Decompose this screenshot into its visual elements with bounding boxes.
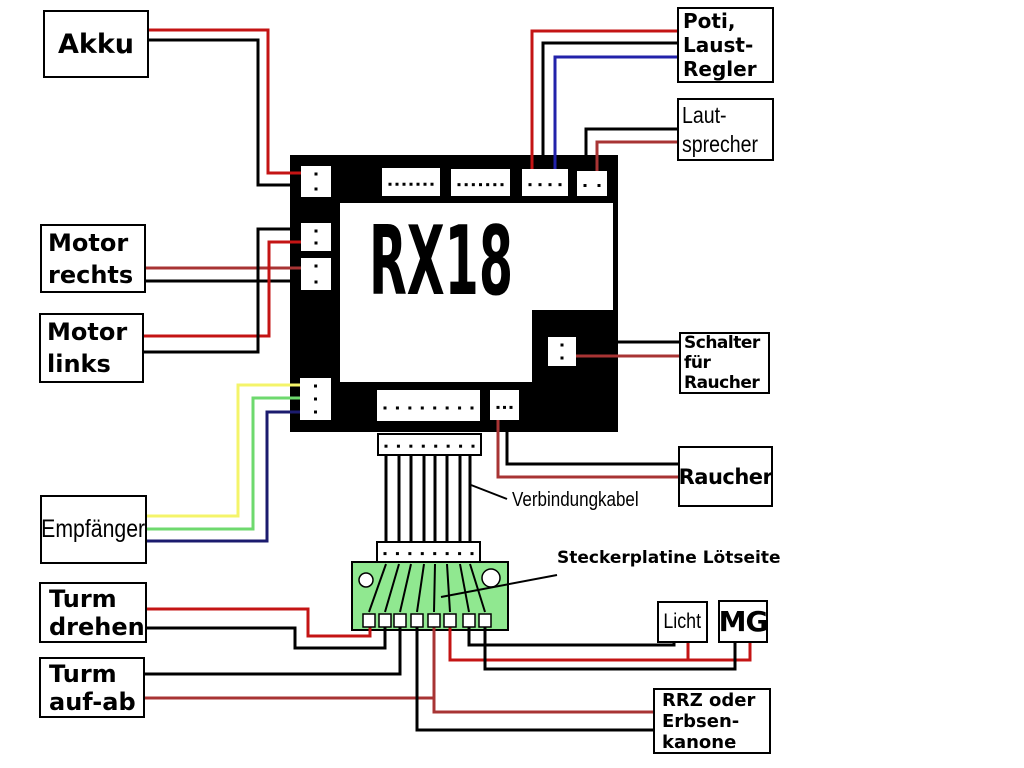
ribbon-cable: [377, 434, 481, 562]
pin-dot: [501, 183, 504, 186]
pin-dot: [472, 445, 475, 448]
mounting-hole: [482, 569, 500, 587]
rx18-board-corner: [532, 310, 618, 432]
lautsprecher-label-line: sprecher: [682, 130, 758, 159]
schalter-raucher-box: Schalter für Raucher: [679, 332, 770, 394]
pin-dot: [559, 183, 562, 186]
poti-laustregler-box: Poti, Laust- Regler: [677, 7, 774, 83]
wire-motor-links-black: [142, 229, 303, 352]
solder-pad: [363, 614, 375, 627]
solder-pad: [379, 614, 391, 627]
top-connector-2: [451, 169, 510, 196]
diagram-canvas: RX18: [0, 0, 1024, 768]
akku-connector: [301, 166, 331, 197]
wire-empfaenger-blue: [146, 412, 302, 541]
wire-turm-drehen-red: [146, 609, 370, 636]
pin-dot: [471, 406, 474, 409]
pin-dot: [434, 445, 437, 448]
motor-links-connector: [301, 258, 331, 290]
pin-dot: [315, 173, 318, 176]
pin-dot: [408, 406, 411, 409]
mg-box: MG: [718, 600, 768, 643]
pin-dot: [446, 406, 449, 409]
wire-poti-blue: [555, 57, 678, 170]
steckerplatine-label: Steckerplatine Lötseite: [557, 549, 781, 568]
raucher-box: Raucher: [678, 446, 773, 507]
pin-dot: [396, 406, 399, 409]
pin-dot: [479, 183, 482, 186]
pin-dot: [458, 183, 461, 186]
solder-pad: [411, 614, 423, 627]
pin-dot: [384, 406, 387, 409]
lautsprecher-connector: [577, 171, 607, 196]
licht-label: Licht: [664, 610, 702, 634]
empfaenger-label: Empfänger: [42, 515, 146, 544]
pin-dot: [459, 445, 462, 448]
licht-box: Licht: [657, 601, 708, 643]
pin-dot: [403, 183, 406, 186]
pin-dot: [486, 183, 489, 186]
wire-akku-black: [148, 40, 303, 185]
pin-dot: [396, 552, 399, 555]
rrz-erbsenkanone-box: RRZ oder Erbsen- kanone: [653, 688, 771, 754]
pin-dot: [314, 411, 317, 414]
pin-dot: [447, 445, 450, 448]
pin-dot: [315, 265, 318, 268]
rrz-label-line: RRZ oder: [662, 690, 755, 711]
verbindungskabel-text: Verbindungkabel: [512, 489, 639, 512]
loetseite-text: Lötseite: [703, 548, 781, 568]
rx18-wiring-diagram: RX18 Akku Poti, Laust- Regler Laut- spre…: [0, 0, 1024, 768]
motor-links-box: Motor links: [39, 313, 144, 383]
poti-label-line: Poti,: [683, 9, 735, 33]
pin-dot: [409, 445, 412, 448]
pin-dot: [465, 183, 468, 186]
lautsprecher-label-line: Laut-: [682, 101, 727, 130]
pin-dot: [422, 445, 425, 448]
poti-label-line: Regler: [683, 57, 757, 81]
pin-dot: [561, 357, 564, 360]
pin-dot: [458, 406, 461, 409]
schalter-label-line: Raucher: [684, 373, 759, 393]
wire-raucher-black: [507, 428, 678, 464]
schalter-label-line: Schalter: [684, 333, 760, 353]
steckerplatine-text: Steckerplatine: [557, 548, 697, 568]
pin-dot: [539, 183, 542, 186]
pin-dot: [397, 445, 400, 448]
rrz-label-line: Erbsen-: [662, 711, 739, 732]
motor-links-label-line: links: [47, 348, 111, 380]
pin-dot: [314, 398, 317, 401]
empfaenger-box: Empfänger: [40, 495, 147, 564]
pin-dot: [314, 385, 317, 388]
pcb-trace: [434, 564, 435, 612]
pin-dot: [421, 552, 424, 555]
solder-pad: [394, 614, 406, 627]
top-connector-1: [382, 168, 440, 196]
turm-drehen-box: Turm drehen: [39, 582, 147, 643]
mounting-hole: [359, 573, 373, 587]
turm-aufab-box: Turm auf-ab: [39, 657, 145, 718]
pin-dot: [497, 406, 500, 409]
pin-dot: [315, 188, 318, 191]
wire-empfaenger-green: [146, 398, 302, 529]
solder-pad: [479, 614, 491, 627]
pin-dot: [433, 406, 436, 409]
pin-dot: [424, 183, 427, 186]
ribbon-strip-top: [378, 434, 481, 455]
pin-dot: [503, 406, 506, 409]
pin-dot: [410, 183, 413, 186]
pin-dot: [529, 183, 532, 186]
verbindungskabel-label: Verbindungkabel: [512, 489, 661, 512]
solder-pad: [463, 614, 475, 627]
mg-label: MG: [719, 605, 768, 638]
poti-label-line: Laust-: [683, 33, 753, 57]
wire-akku-red: [148, 30, 303, 173]
cable-pointer-line: [471, 485, 507, 499]
pin-dot: [472, 183, 475, 186]
pin-dot: [446, 552, 449, 555]
lautsprecher-box: Laut- sprecher: [677, 98, 774, 161]
pin-dot: [458, 552, 461, 555]
schalter-label-line: für: [684, 353, 710, 373]
pin-dot: [510, 406, 513, 409]
motor-rechts-label-line: rechts: [48, 259, 133, 291]
turm-drehen-label-line: Turm: [49, 585, 117, 613]
bottom-connector-long: [377, 390, 480, 421]
solder-pad: [428, 614, 440, 627]
pin-dot: [549, 183, 552, 186]
pin-dot: [384, 552, 387, 555]
pin-dot: [408, 552, 411, 555]
pin-dot: [431, 183, 434, 186]
pin-dot: [598, 184, 601, 187]
pin-dot: [471, 552, 474, 555]
pin-dot: [315, 281, 318, 284]
pin-dot: [493, 183, 496, 186]
motor-rechts-box: Motor rechts: [40, 224, 146, 293]
ribbon-strip-bottom: [377, 542, 480, 562]
pin-dot: [315, 242, 318, 245]
motor-links-label-line: Motor: [47, 316, 127, 348]
wire-motor-links-red: [142, 242, 303, 336]
turm-aufab-label-line: auf-ab: [49, 688, 136, 716]
motor-rechts-connector: [301, 223, 331, 251]
motor-rechts-label-line: Motor: [48, 227, 128, 259]
schalter-connector: [548, 337, 576, 366]
akku-label: Akku: [58, 29, 134, 60]
pin-dot: [433, 552, 436, 555]
pin-dot: [396, 183, 399, 186]
pin-dot: [389, 183, 392, 186]
rrz-label-line: kanone: [662, 732, 736, 753]
pin-dot: [421, 406, 424, 409]
pin-dot: [584, 184, 587, 187]
pin-dot: [385, 445, 388, 448]
pin-dot: [561, 344, 564, 347]
wire-rrz-black: [417, 624, 655, 730]
turm-aufab-label-line: Turm: [49, 660, 117, 688]
board-title: RX18: [369, 207, 513, 317]
solder-pad: [444, 614, 456, 627]
turm-drehen-label-line: drehen: [49, 613, 145, 641]
pin-dot: [417, 183, 420, 186]
akku-box: Akku: [43, 10, 149, 78]
wire-poti-black: [543, 43, 678, 170]
raucher-label: Raucher: [679, 465, 773, 489]
bottom-connector-small: [490, 390, 519, 420]
poti-connector: [522, 169, 568, 196]
wire-empfaenger-yellow: [146, 385, 302, 516]
pin-dot: [315, 230, 318, 233]
